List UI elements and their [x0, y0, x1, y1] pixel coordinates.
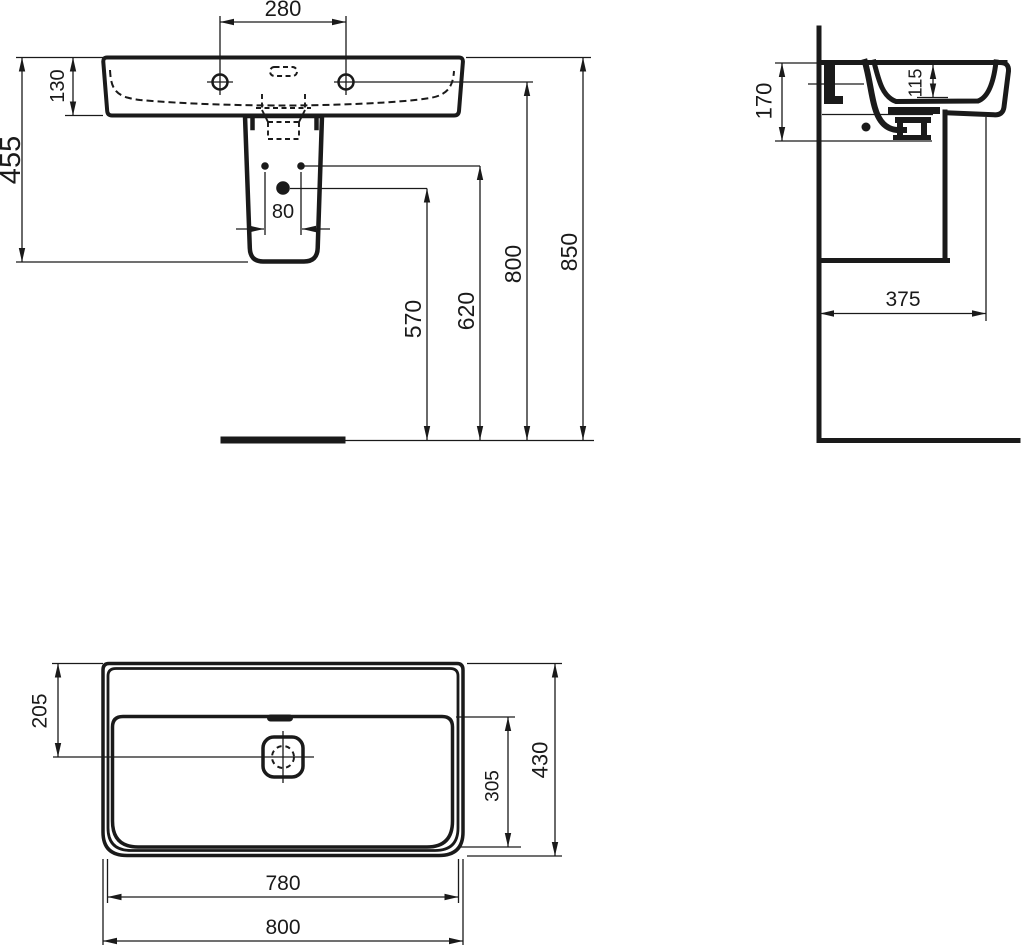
dimension-850: 850	[466, 58, 591, 441]
dimension-130: 130	[16, 58, 103, 116]
dimension-305: 305	[456, 717, 521, 847]
bowl-contour-dashed	[110, 70, 454, 106]
dim-label-780: 780	[265, 872, 300, 895]
dim-label-455: 455	[0, 136, 27, 184]
dimension-205: 205	[28, 664, 103, 758]
dim-label-620: 620	[453, 292, 479, 330]
dimension-455: 455	[0, 58, 248, 263]
dim-label-430: 430	[528, 742, 553, 779]
plan-overflow-mark	[267, 715, 293, 722]
drawing-canvas: 280 130 455 80 570	[0, 0, 1024, 948]
plan-view: 205 305 430 780 800	[28, 664, 562, 946]
dimension-280: 280	[220, 0, 346, 22]
bowl-inner-surface	[874, 62, 996, 102]
dimension-375: 375	[820, 117, 986, 321]
dim-label-115: 115	[905, 69, 925, 98]
dimension-430: 430	[467, 664, 562, 857]
dim-label-130: 130	[47, 69, 69, 102]
supply-point-dot	[276, 181, 290, 195]
dim-label-800-width: 800	[265, 916, 300, 939]
dim-label-305: 305	[483, 770, 504, 802]
dim-label-850: 850	[556, 233, 582, 271]
side-view: 170 115 375	[752, 28, 1018, 441]
dim-label-205: 205	[28, 693, 51, 728]
dim-label-570: 570	[400, 300, 426, 338]
drain-assembly	[888, 107, 940, 140]
dim-label-80: 80	[272, 201, 294, 223]
front-view: 280 130 455 80 570	[0, 0, 594, 441]
dim-label-375: 375	[885, 288, 920, 311]
dimension-115: 115	[905, 65, 948, 98]
dimension-620: 620	[301, 166, 480, 440]
dimension-drawing: 280 130 455 80 570	[0, 0, 1024, 948]
dim-label-800-height: 800	[500, 245, 526, 283]
dimension-800-height: 800	[500, 82, 527, 440]
dim-label-170: 170	[752, 83, 777, 120]
dimension-780: 780	[108, 859, 459, 903]
overflow-slot-dashed	[270, 67, 297, 76]
dim-label-280: 280	[265, 0, 302, 21]
fixing-hole-left-dot	[261, 162, 269, 170]
front-profile	[948, 63, 1009, 115]
plan-drain-symbol	[53, 731, 314, 783]
dimension-570: 570	[290, 189, 427, 441]
overflow-nub	[862, 123, 871, 132]
